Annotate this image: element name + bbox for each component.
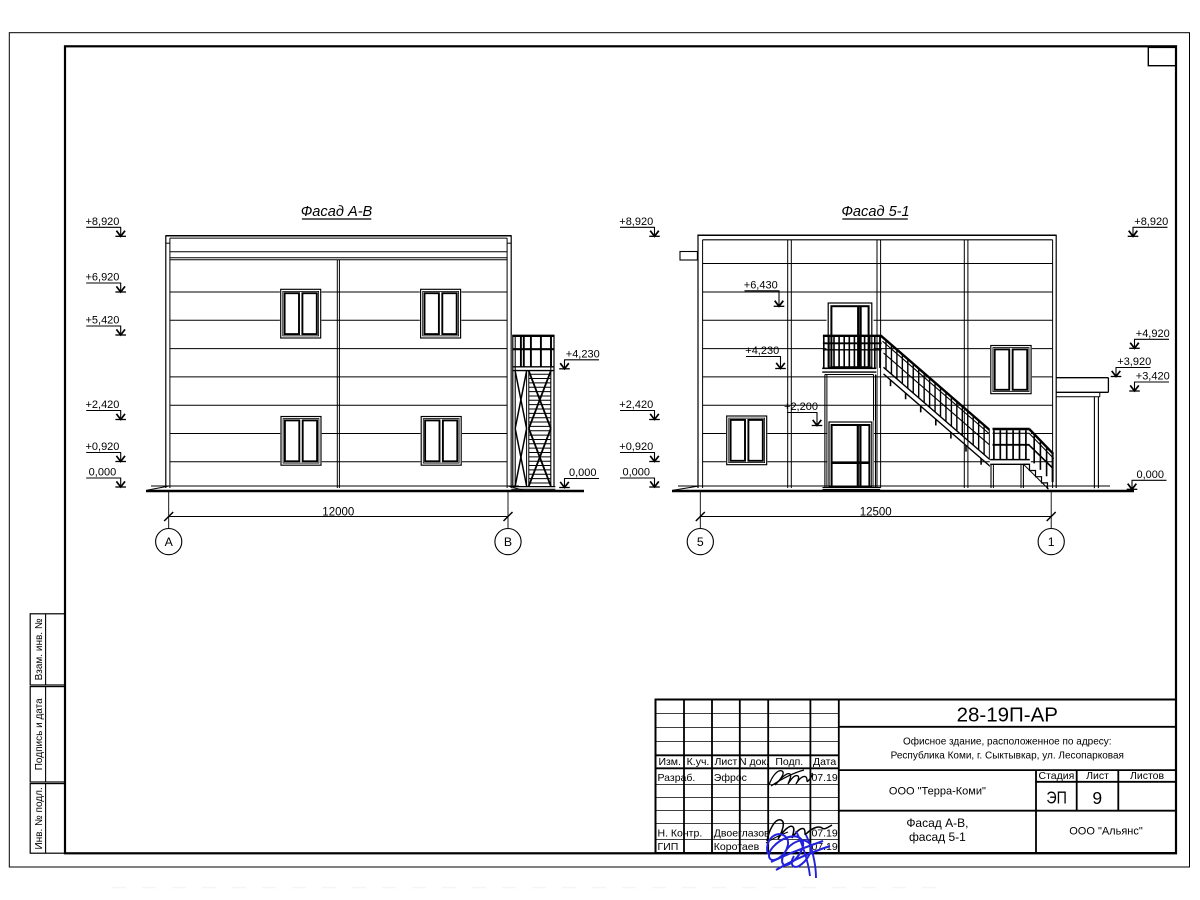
svg-text:+4,230: +4,230 — [745, 345, 779, 357]
svg-text:+6,920: +6,920 — [85, 272, 119, 284]
svg-text:N док.: N док. — [739, 756, 769, 768]
svg-text:0,000: 0,000 — [1136, 469, 1164, 481]
svg-text:Взам. инв. №: Взам. инв. № — [34, 618, 45, 680]
svg-text:+0,920: +0,920 — [619, 441, 653, 453]
svg-text:Разраб.: Разраб. — [658, 772, 696, 784]
svg-text:+8,920: +8,920 — [85, 216, 119, 228]
svg-text:Двоеглазов: Двоеглазов — [714, 827, 770, 839]
svg-text:А: А — [165, 535, 174, 549]
svg-text:Инв. № подл.: Инв. № подл. — [34, 787, 45, 849]
svg-text:Лист: Лист — [714, 756, 737, 768]
svg-text:Н. Контр.: Н. Контр. — [658, 827, 703, 839]
svg-text:Подп.: Подп. — [775, 756, 803, 768]
svg-text:Фасад 5-1: Фасад 5-1 — [841, 204, 909, 220]
svg-text:ЭП: ЭП — [1046, 788, 1067, 808]
svg-text:+8,920: +8,920 — [1134, 216, 1168, 228]
svg-text:+2,420: +2,420 — [85, 399, 119, 411]
svg-text:0,000: 0,000 — [569, 467, 597, 479]
svg-text:12000: 12000 — [322, 506, 354, 518]
svg-text:В: В — [504, 535, 512, 549]
svg-text:фасад 5-1: фасад 5-1 — [909, 830, 966, 844]
svg-text:+3,420: +3,420 — [1136, 371, 1170, 383]
svg-text:Фасад А-В,: Фасад А-В, — [906, 816, 968, 830]
svg-text:12500: 12500 — [860, 506, 892, 518]
svg-text:Республика Коми, г. Сыктывкар,: Республика Коми, г. Сыктывкар, ул. Лесоп… — [891, 750, 1124, 762]
svg-text:Лист: Лист — [1086, 770, 1109, 782]
svg-text:Листов: Листов — [1130, 770, 1165, 782]
svg-text:+4,230: +4,230 — [566, 348, 600, 360]
svg-text:Фасад А-В: Фасад А-В — [301, 204, 373, 220]
svg-text:+6,430: +6,430 — [744, 279, 778, 291]
svg-text:+8,920: +8,920 — [619, 216, 653, 228]
svg-text:9: 9 — [1092, 788, 1102, 808]
svg-text:Подпись и дата: Подпись и дата — [34, 698, 45, 770]
svg-text:28-19П-АР: 28-19П-АР — [957, 704, 1058, 727]
svg-text:07.19: 07.19 — [811, 772, 837, 784]
svg-text:+2,420: +2,420 — [619, 399, 653, 411]
svg-text:1: 1 — [1048, 535, 1055, 549]
svg-text:Офисное здание, расположенное: Офисное здание, расположенное по адресу: — [903, 736, 1112, 748]
svg-text:ООО "Терра-Коми": ООО "Терра-Коми" — [889, 786, 986, 798]
svg-text:Стадия: Стадия — [1039, 770, 1075, 782]
svg-text:К.уч.: К.уч. — [687, 756, 710, 768]
svg-text:+2,200: +2,200 — [784, 401, 818, 413]
svg-text:Коротаев: Коротаев — [714, 841, 760, 853]
svg-text:ГИП: ГИП — [658, 841, 679, 853]
svg-text:+4,920: +4,920 — [1136, 328, 1170, 340]
svg-text:Эфрос: Эфрос — [714, 772, 747, 784]
svg-text:+5,420: +5,420 — [85, 315, 119, 327]
svg-text:+0,920: +0,920 — [85, 441, 119, 453]
svg-text:0,000: 0,000 — [89, 467, 117, 479]
svg-text:0,000: 0,000 — [622, 467, 650, 479]
svg-text:5: 5 — [697, 535, 704, 549]
svg-text:Изм.: Изм. — [658, 756, 681, 768]
svg-text:+3,920: +3,920 — [1117, 356, 1151, 368]
svg-text:ООО "Альянс": ООО "Альянс" — [1069, 826, 1143, 838]
svg-text:Дата: Дата — [813, 756, 836, 768]
